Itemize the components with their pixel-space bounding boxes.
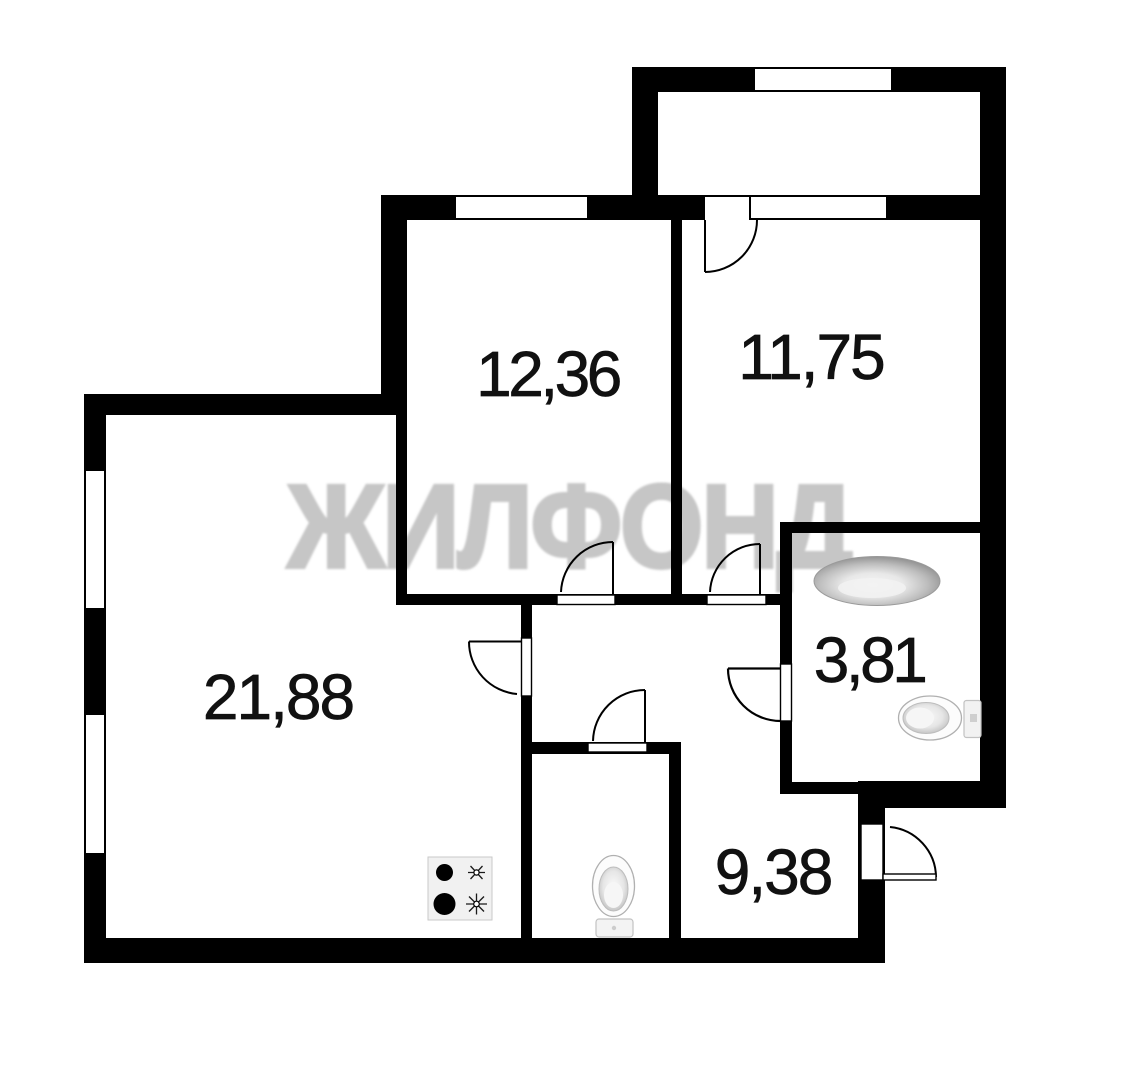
svg-text:ЖИЛФОНД: ЖИЛФОНД [287, 460, 852, 592]
svg-text:3,81: 3,81 [814, 624, 925, 696]
svg-text:9,38: 9,38 [715, 836, 832, 908]
svg-text:12,36: 12,36 [476, 338, 620, 410]
svg-text:21,88: 21,88 [203, 661, 353, 733]
svg-text:11,75: 11,75 [738, 321, 883, 393]
